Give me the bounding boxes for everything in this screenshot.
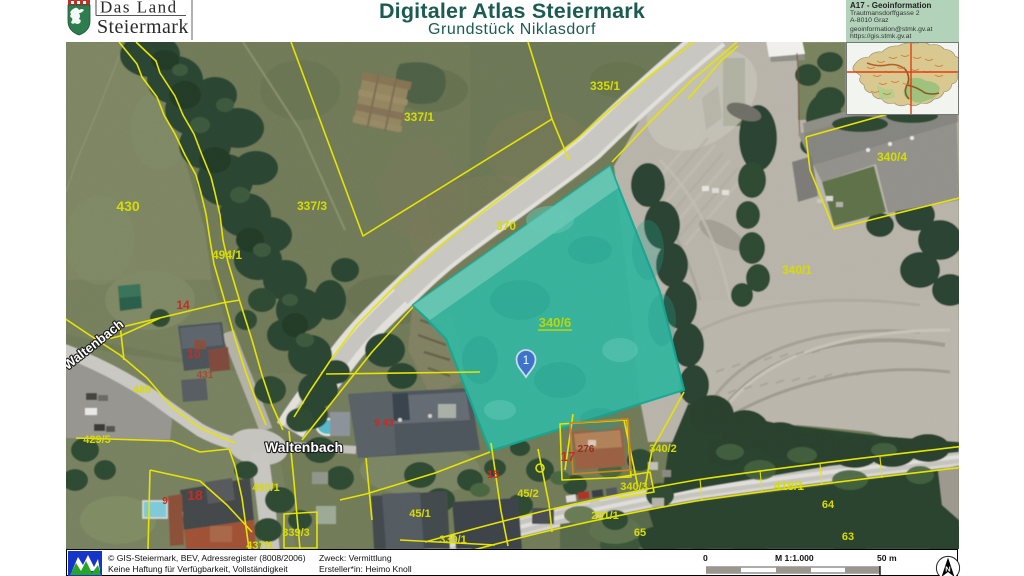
svg-text:Das Land: Das Land	[100, 0, 178, 17]
svg-text:N: N	[945, 565, 950, 574]
svg-text:Steiermark: Steiermark	[97, 16, 189, 38]
